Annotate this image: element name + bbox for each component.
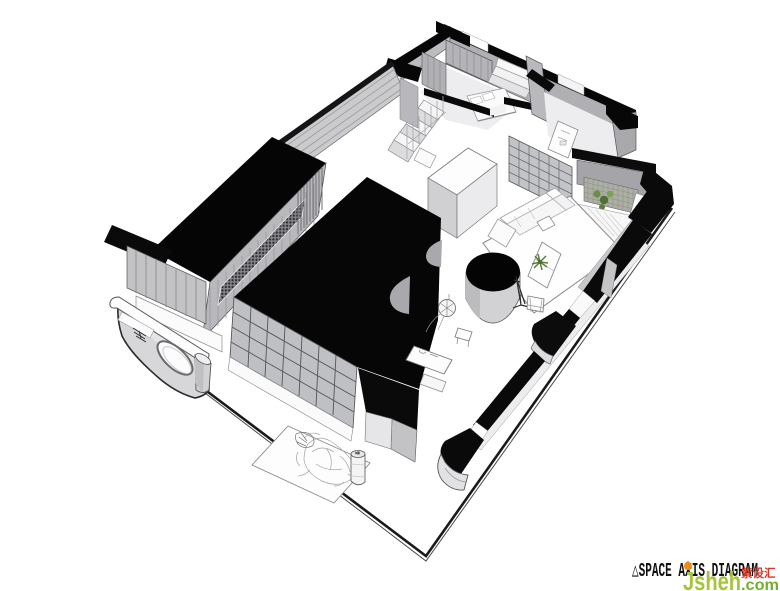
svg-text:.com: .com [741,577,779,591]
svg-text:Jsheh: Jsheh [683,566,741,591]
